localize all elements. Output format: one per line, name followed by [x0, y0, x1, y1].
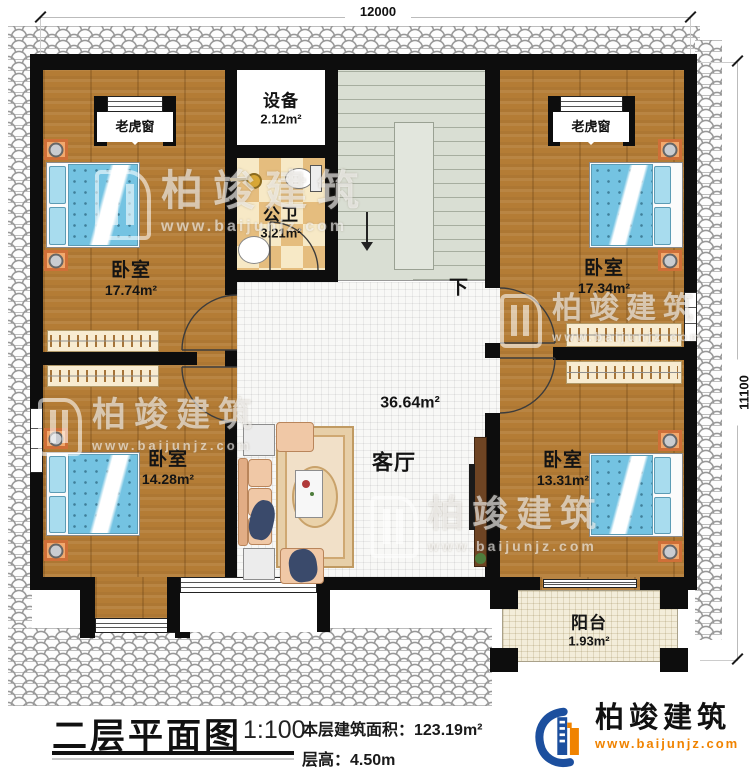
bed-pillow	[654, 207, 671, 245]
bed-pillow	[654, 457, 671, 494]
side-table	[243, 548, 275, 580]
bay-window-glass	[95, 618, 175, 633]
stairs-down-label: 下	[449, 279, 469, 298]
dormer-right-label: 老虎窗	[553, 112, 629, 142]
living-window-stub-a	[167, 577, 180, 632]
room-label-bedroom-bottom-left: 卧室 14.28m²	[142, 450, 194, 486]
wall-stairs-right-a	[485, 54, 500, 288]
room-label-bedroom-top-right: 卧室 17.34m²	[578, 259, 630, 295]
tv-cabinet	[474, 437, 487, 567]
balcony-post-br	[660, 648, 688, 672]
sofa-cushion	[248, 459, 272, 487]
window-right-wall	[684, 292, 697, 342]
brand-name: 柏竣建筑	[595, 704, 739, 733]
building-swoosh-logo-icon	[533, 704, 587, 770]
wall-divider-right-bedrooms	[553, 347, 684, 360]
nightstand	[658, 250, 682, 271]
faucet-stem	[230, 178, 246, 181]
bed-pillow	[49, 207, 66, 245]
wall-stairs-right-b	[485, 343, 500, 358]
floor-height-text: 层高：4.50m	[302, 746, 395, 770]
dimension-leader	[690, 18, 691, 54]
dormer-right-window	[560, 96, 623, 112]
wall-left-bedrooms-c	[225, 422, 237, 577]
bed-blanket	[68, 454, 138, 534]
nightstand	[44, 139, 68, 160]
wall-outer-top	[30, 54, 697, 70]
wardrobe	[566, 361, 682, 384]
balcony-post-bl	[490, 648, 518, 672]
room-label-equipment: 设备 2.12m²	[260, 93, 301, 126]
toilet-tank-icon	[310, 165, 322, 192]
brand-logo: 柏竣建筑 www.baijunjz.com	[533, 704, 739, 770]
room-label-bedroom-top-left: 卧室 17.74m²	[105, 261, 157, 297]
room-label-balcony: 阳台 1.93m²	[568, 615, 609, 648]
floor-area-text: 本层建筑面积：123.19m²	[302, 716, 483, 740]
wall-bathroom-right	[325, 70, 338, 282]
balcony-sliding-door	[543, 579, 637, 588]
room-label-bedroom-bottom-right: 卧室 13.31m²	[537, 451, 589, 487]
sofa-back	[238, 458, 248, 546]
roof-tiles-right	[695, 40, 722, 640]
stair-void	[394, 122, 434, 270]
sheet-scale: 1:100	[243, 716, 306, 745]
side-table	[243, 424, 275, 456]
wall-left-bedrooms-b	[225, 350, 237, 367]
bed-blanket	[68, 164, 138, 246]
bed-pillow	[654, 497, 671, 534]
wall-divider-left-bedrooms	[43, 352, 197, 365]
plant-icon	[475, 553, 486, 564]
faucet-icon	[246, 173, 262, 189]
wall-stairs-right-c	[485, 413, 500, 577]
nightstand	[44, 250, 68, 271]
tv-screen	[469, 464, 475, 530]
armchair-top	[276, 422, 314, 452]
brand-url: www.baijunjz.com	[595, 736, 739, 751]
bay-window-floor	[95, 577, 175, 620]
bed-pillow	[49, 496, 66, 533]
dimension-leader	[40, 18, 41, 54]
nightstand	[658, 541, 682, 562]
title-underline-thick	[52, 751, 294, 755]
wall-bathroom-bottom	[225, 270, 338, 282]
bed-pillow	[49, 456, 66, 493]
bed-pillow	[49, 166, 66, 204]
stair-arrowhead	[361, 242, 373, 257]
living-window-stub-b	[317, 577, 330, 632]
title-underline-thin	[52, 758, 294, 760]
balcony-post-tl	[490, 585, 518, 609]
wardrobe	[47, 330, 159, 352]
toilet-icon	[285, 168, 313, 189]
dimension-top-value: 12000	[345, 4, 411, 19]
floor-plan-sheet: 老虎窗 老虎窗 下	[0, 0, 750, 777]
wall-left-bedrooms-a	[225, 54, 237, 295]
dormer-left-label: 老虎窗	[97, 112, 173, 142]
nightstand	[44, 428, 68, 449]
wall-outer-left	[30, 54, 43, 590]
bed-blanket	[591, 455, 653, 535]
roof-tiles-top	[8, 26, 700, 57]
stair-direction-arrow	[366, 212, 368, 244]
table-flowers	[302, 480, 310, 488]
roof-tiles-bottom	[8, 628, 492, 706]
nightstand	[658, 430, 682, 451]
wardrobe	[47, 365, 159, 387]
living-room-area-label: 36.64m²	[380, 393, 440, 412]
nightstand	[44, 540, 68, 561]
bay-window-stub-a	[80, 577, 95, 638]
wardrobe	[566, 323, 682, 347]
balcony-post-tr	[660, 585, 688, 609]
bed-pillow	[654, 166, 671, 204]
wall-equipment-bathroom	[237, 145, 325, 158]
room-label-bathroom: 公卫 3.21m²	[260, 207, 301, 240]
roof-tiles-left	[8, 26, 32, 650]
window-left-wall	[30, 408, 43, 473]
coffee-table	[295, 470, 323, 518]
dormer-left-window	[107, 96, 163, 112]
living-room-name-label: 客厅	[372, 453, 416, 474]
nightstand	[658, 139, 682, 160]
dimension-right-value: 11100	[737, 360, 750, 426]
bed-blanket	[591, 164, 653, 246]
